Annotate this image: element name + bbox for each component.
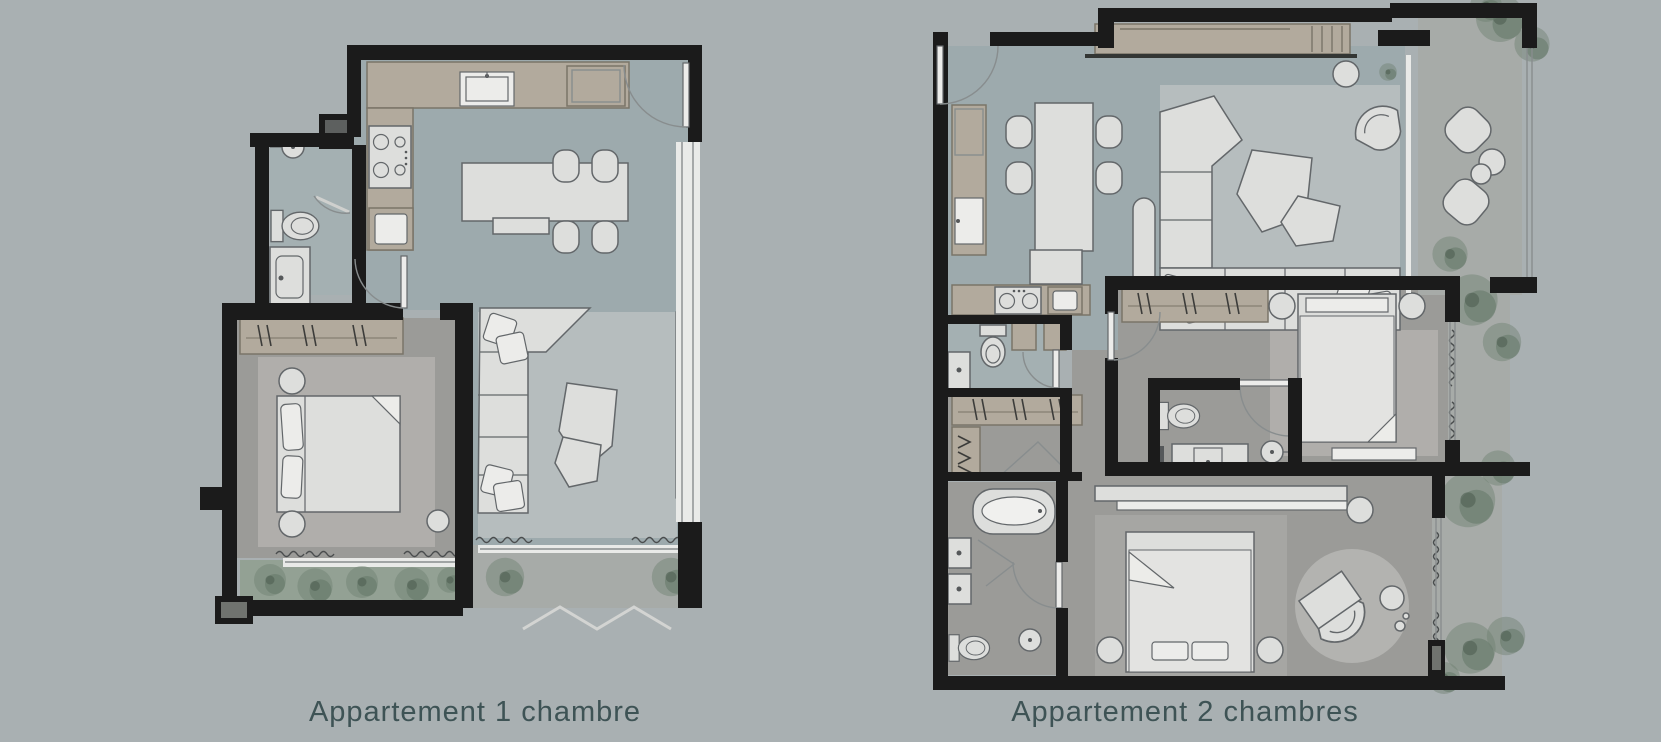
wardrobe: [240, 318, 403, 354]
kitchen-sink-icon: [460, 72, 514, 106]
balcony-railing: [523, 607, 671, 629]
nightstand-icon: [1097, 637, 1123, 663]
floor-plan-1-bedroom: [195, 25, 710, 635]
nightstand-icon: [1399, 293, 1425, 319]
bed-icon: [1298, 294, 1396, 442]
stove-icon: [369, 126, 411, 188]
plant-icon: [1432, 236, 1467, 271]
nightstand-icon: [279, 511, 305, 537]
plant-icon: [1379, 63, 1397, 81]
shower-icon: [1019, 629, 1041, 651]
plan-1-caption: Appartement 1 chambre: [215, 692, 735, 732]
bench: [1332, 448, 1416, 460]
washbasin-icon: [948, 352, 970, 390]
wardrobe: [1122, 288, 1268, 322]
nightstand-icon: [1257, 637, 1283, 663]
ottoman: [1347, 497, 1373, 523]
toilet-icon: [1158, 402, 1200, 429]
nightstand-icon: [1269, 293, 1295, 319]
toilet-icon: [271, 210, 319, 241]
washbasin-icon: [270, 247, 310, 305]
tv-console: [1095, 24, 1350, 54]
floor-plan-2-bedrooms: [925, 0, 1550, 700]
console: [1095, 486, 1347, 501]
side-table: [1133, 198, 1155, 286]
stove-icon: [995, 287, 1041, 314]
side-table: [1333, 61, 1359, 87]
bathtub-icon: [973, 489, 1055, 534]
plant-icon: [486, 558, 524, 596]
dining-table: [1035, 103, 1093, 251]
fridge-icon: [567, 66, 625, 106]
toilet-icon: [980, 325, 1006, 367]
bed-icon: [1126, 532, 1254, 672]
bed-icon: [277, 396, 400, 512]
toilet-icon: [949, 635, 990, 662]
nightstand-icon: [427, 510, 449, 532]
oven-icon: [369, 208, 413, 250]
floor-plans-canvas: Appartement 1 chambre Appartement 2 cham…: [0, 0, 1661, 742]
nightstand-icon: [279, 368, 305, 394]
plan-2-caption: Appartement 2 chambres: [915, 692, 1455, 732]
